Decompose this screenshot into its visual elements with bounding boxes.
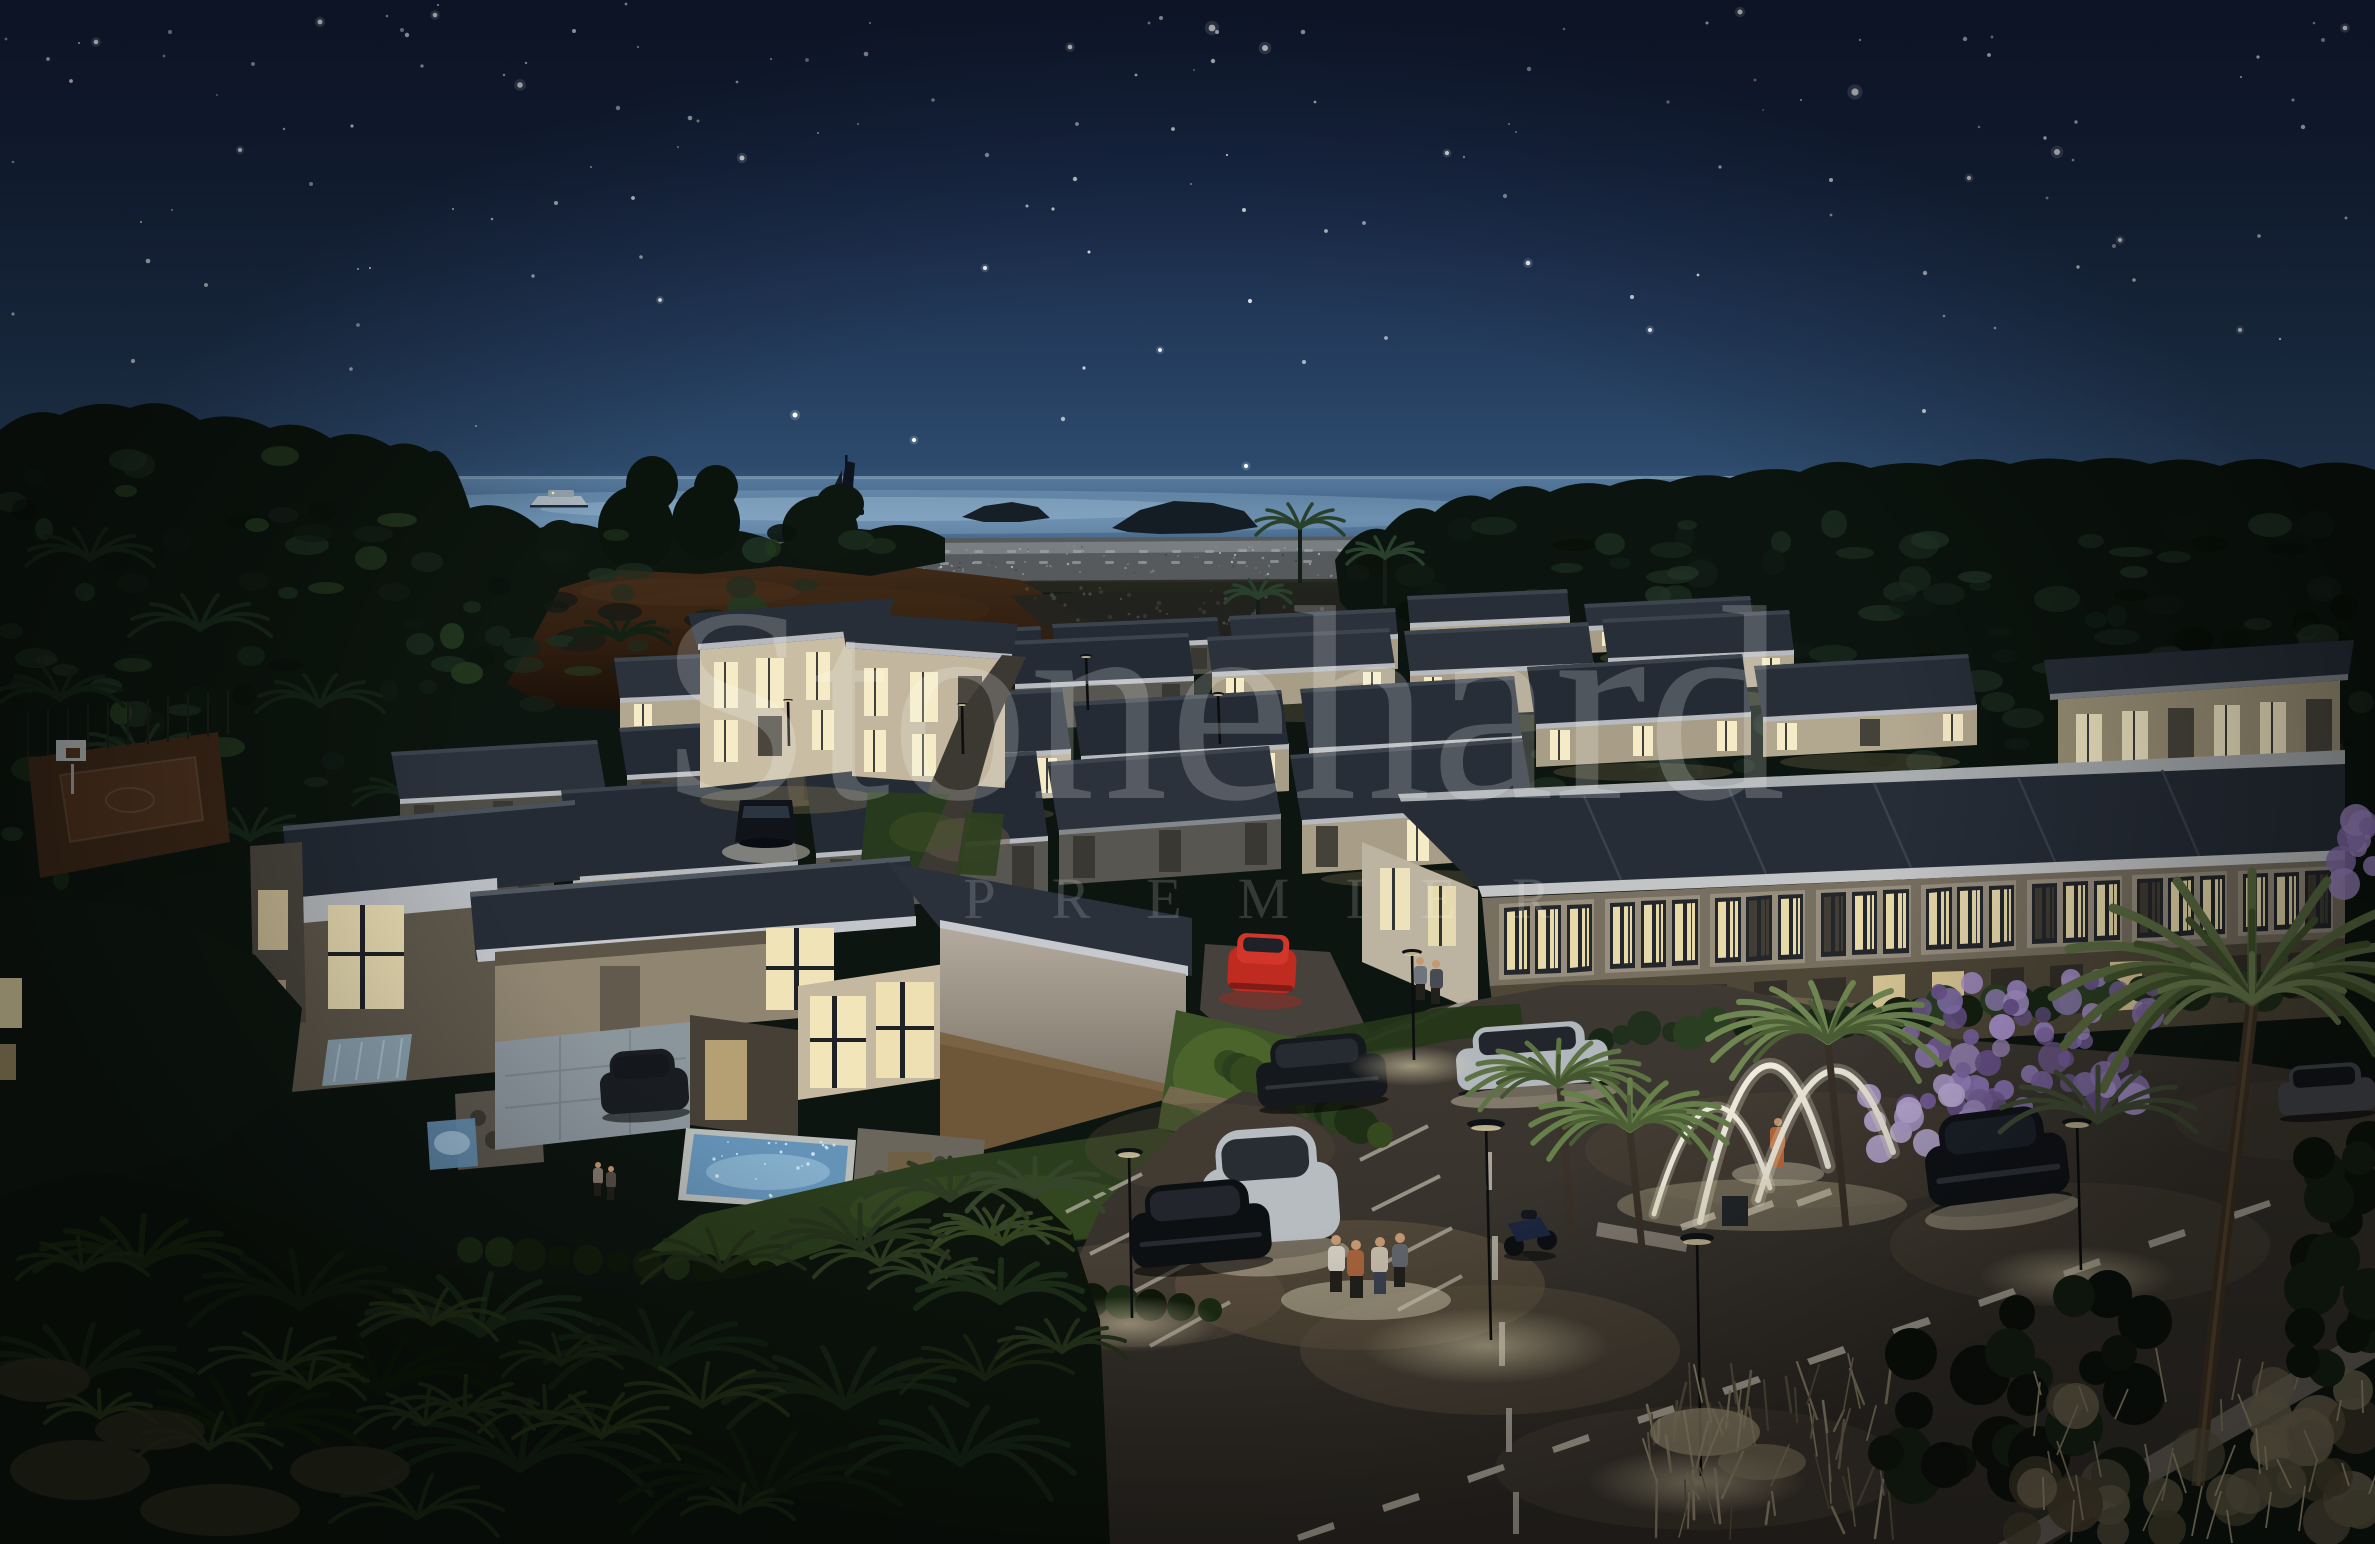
svg-text:Stonehard: Stonehard (658, 551, 1785, 859)
svg-text:PREMIER: PREMIER (963, 866, 1606, 931)
